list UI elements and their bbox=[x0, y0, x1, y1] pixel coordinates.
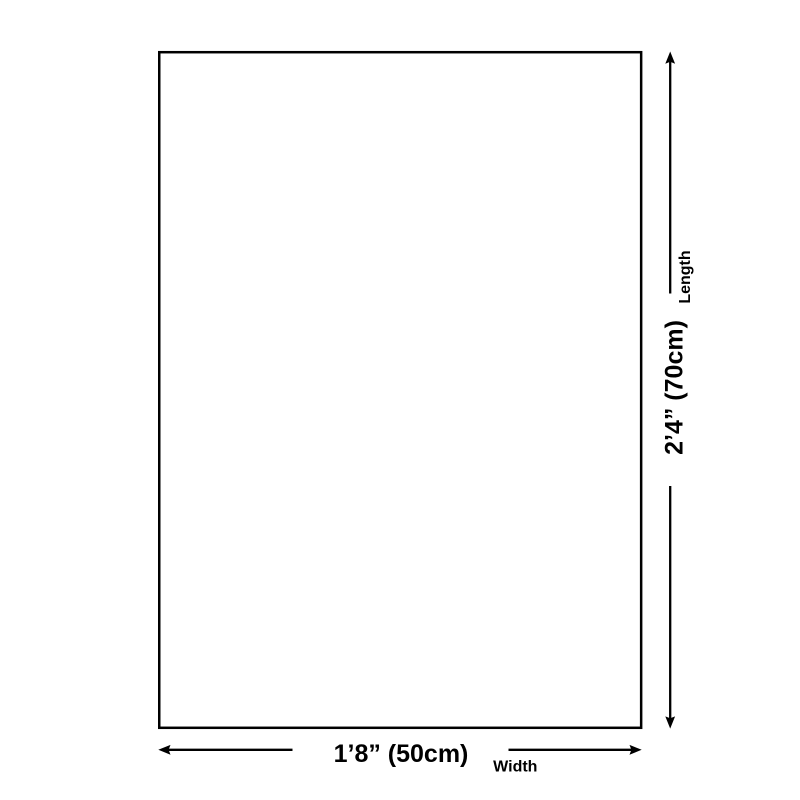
svg-text:1’8” (50cm): 1’8” (50cm) bbox=[334, 740, 469, 768]
svg-text:2’4” (70cm): 2’4” (70cm) bbox=[661, 320, 689, 455]
svg-text:Length: Length bbox=[677, 250, 694, 303]
svg-text:Width: Width bbox=[493, 758, 537, 775]
